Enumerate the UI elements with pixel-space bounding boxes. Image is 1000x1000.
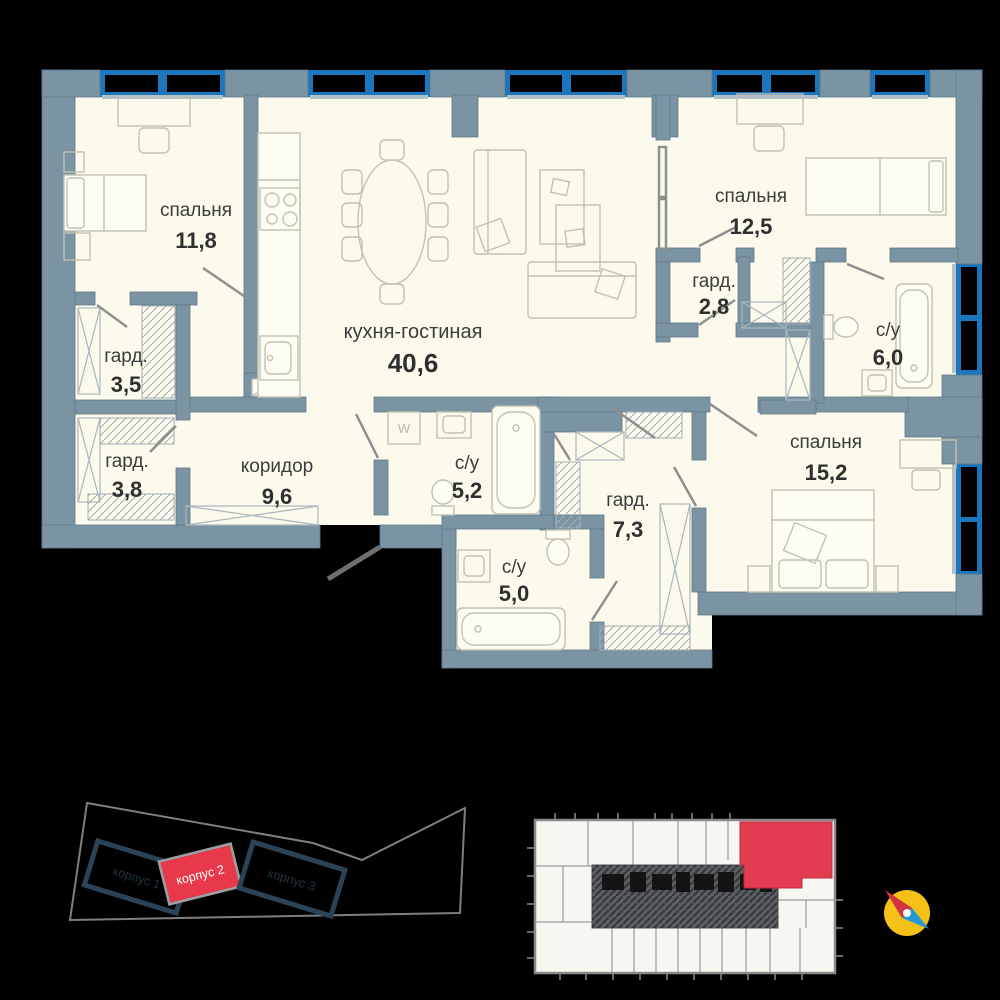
washer-label: W [398,421,411,436]
building-korpus-2[interactable]: корпус 2 [159,844,241,905]
site-boundary [70,803,465,920]
room-name: гард. [104,346,148,367]
room-area: 5,0 [499,581,530,606]
room-name: гард. [105,451,149,472]
room-name: с/у [455,453,480,474]
room-area: 11,8 [175,228,217,253]
kitchen-counter-icon [258,133,300,397]
compass-icon [884,890,930,936]
room-name: гард. [692,271,736,292]
room-name: гард. [606,490,650,511]
room-area: 3,8 [112,477,143,502]
room-area: 40,6 [388,348,439,378]
room-name: кухня-гостиная [344,321,483,343]
floor-plan-page: спальня 11,8 гард. 3,5 гард. 3,8 коридор… [0,0,1000,1000]
selected-unit[interactable] [740,822,832,888]
room-label-bathroom-3: с/у 5,0 [499,557,530,606]
bathtub-icon [492,406,540,514]
toilet-icon [546,530,570,565]
room-area: 12,5 [730,214,773,239]
site-plan: корпус 1 корпус 2 корпус 3 [70,803,465,920]
room-name: коридор [241,456,314,477]
room-area: 15,2 [805,460,848,485]
room-area: 6,0 [873,345,904,370]
room-name: спальня [160,200,232,221]
building-korpus-3[interactable]: корпус 3 [239,842,345,916]
room-name: спальня [790,432,862,453]
room-label-bathroom-2: с/у 5,2 [452,453,483,503]
toilet-icon [432,480,454,515]
plan-canvas: спальня 11,8 гард. 3,5 гард. 3,8 коридор… [0,0,1000,1000]
room-label-wardrobe-1: гард. 3,5 [104,346,148,397]
room-name: с/у [502,557,527,578]
toilet-icon [824,315,858,339]
room-area: 9,6 [262,484,293,509]
room-area: 5,2 [452,478,483,503]
bathtub-icon [457,608,565,650]
room-name: спальня [715,186,787,207]
room-area: 3,5 [111,372,142,397]
room-label-wardrobe-2: гард. 3,8 [105,451,149,502]
room-label-bathroom-1: с/у 6,0 [873,320,904,370]
room-area: 2,8 [699,294,730,319]
building-label: корпус 3 [266,866,317,894]
room-label-wardrobe-3: гард. 2,8 [692,271,736,319]
bed-icon [806,158,946,215]
room-area: 7,3 [613,517,644,542]
entrance-door [328,547,380,579]
building-label: корпус 1 [111,864,162,892]
floor-overview [527,813,843,980]
bathtub-icon [896,284,932,388]
room-name: с/у [876,320,901,341]
